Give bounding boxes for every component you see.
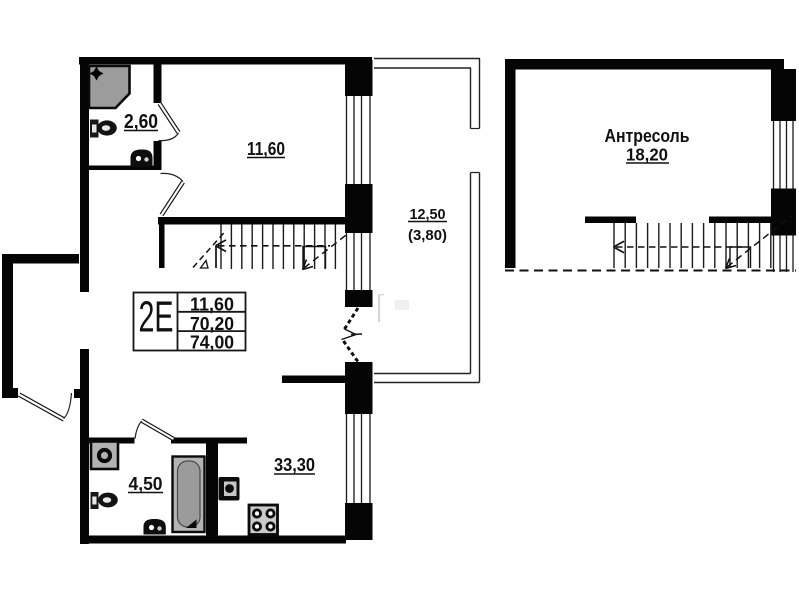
- svg-text:12,50: 12,50: [410, 207, 446, 223]
- svg-text:2E: 2E: [139, 293, 174, 342]
- svg-text:Антресоль: Антресоль: [605, 125, 690, 146]
- svg-text:18,20: 18,20: [626, 145, 668, 165]
- svg-text:(3,80): (3,80): [408, 228, 447, 244]
- svg-text:33,30: 33,30: [274, 454, 315, 475]
- svg-text:2,60: 2,60: [124, 110, 158, 133]
- svg-text:11,60: 11,60: [247, 138, 285, 159]
- svg-text:74,00: 74,00: [190, 333, 234, 353]
- svg-text:70,20: 70,20: [190, 314, 234, 334]
- svg-text:11,60: 11,60: [190, 295, 234, 315]
- svg-text:4,50: 4,50: [129, 473, 163, 494]
